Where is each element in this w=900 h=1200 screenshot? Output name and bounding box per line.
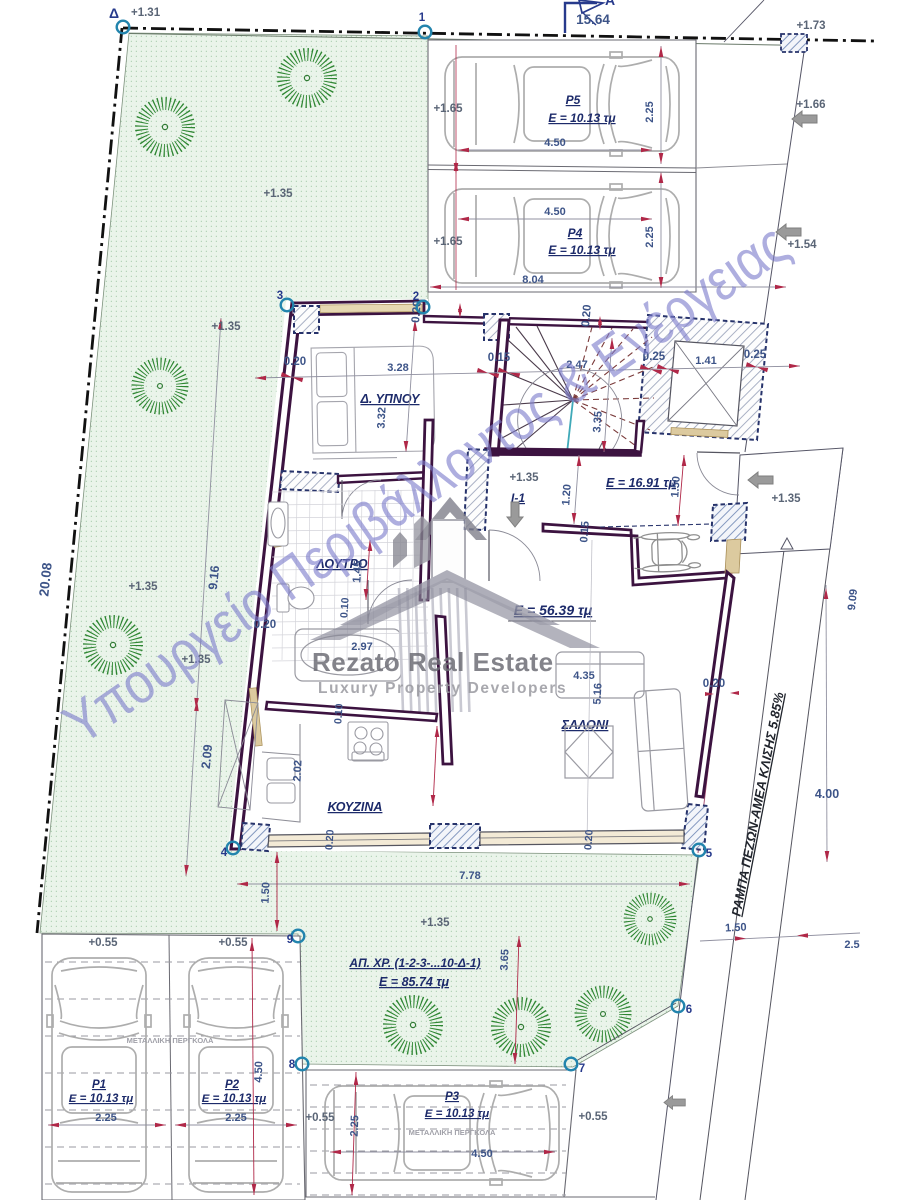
svg-text:ΑΠ. ΧΡ. (1-2-3-...10-Δ-1): ΑΠ. ΧΡ. (1-2-3-...10-Δ-1) (348, 956, 480, 970)
svg-text:ΚΟΥΖΙΝΑ: ΚΟΥΖΙΝΑ (328, 800, 383, 814)
svg-text:9.09: 9.09 (846, 588, 860, 611)
svg-text:+0.55: +0.55 (578, 1111, 608, 1123)
svg-text:P1: P1 (92, 1079, 106, 1091)
svg-text:+0.55: +0.55 (305, 1112, 335, 1124)
svg-text:+1.35: +1.35 (509, 472, 539, 484)
svg-text:+1.73: +1.73 (796, 20, 825, 32)
svg-text:5.16: 5.16 (591, 683, 604, 705)
svg-text:1.41: 1.41 (695, 355, 716, 367)
svg-text:0.20: 0.20 (703, 678, 725, 690)
svg-text:Ε = 85.74 τμ: Ε = 85.74 τμ (379, 975, 449, 989)
svg-text:1.50: 1.50 (725, 921, 747, 934)
svg-text:7: 7 (579, 1063, 585, 1075)
svg-text:4.00: 4.00 (815, 787, 839, 801)
svg-text:P2: P2 (225, 1079, 240, 1091)
svg-text:6: 6 (686, 1004, 692, 1016)
svg-text:3.28: 3.28 (387, 362, 408, 374)
svg-text:8: 8 (289, 1059, 296, 1071)
svg-text:Rezato Real Estate: Rezato Real Estate (312, 647, 554, 677)
svg-text:2.25: 2.25 (349, 1115, 362, 1137)
svg-text:4.50: 4.50 (544, 206, 565, 218)
svg-text:0.15: 0.15 (488, 352, 511, 364)
svg-text:P4: P4 (568, 226, 583, 240)
svg-text:Δ. ΥΠΝΟΥ: Δ. ΥΠΝΟΥ (359, 392, 421, 406)
svg-text:+0.55: +0.55 (218, 937, 248, 949)
svg-text:1.20: 1.20 (560, 484, 573, 506)
svg-text:1.50: 1.50 (259, 882, 272, 904)
svg-text:Ε = 10.13 τμ: Ε = 10.13 τμ (548, 111, 616, 125)
svg-text:+1.54: +1.54 (787, 239, 817, 251)
svg-text:2.09: 2.09 (199, 744, 215, 770)
svg-text:Ε = 10.13 τμ: Ε = 10.13 τμ (69, 1093, 133, 1105)
svg-text:Luxury Property Developers: Luxury Property Developers (318, 680, 567, 697)
svg-text:4.35: 4.35 (573, 670, 594, 682)
svg-text:0.10: 0.10 (338, 597, 351, 618)
svg-text:0.20: 0.20 (323, 829, 336, 850)
svg-text:Δ: Δ (109, 5, 119, 21)
svg-text:+1.35: +1.35 (771, 493, 801, 505)
svg-text:2.25: 2.25 (644, 226, 656, 247)
svg-text:4.50: 4.50 (471, 1148, 492, 1160)
svg-text:1: 1 (419, 12, 426, 24)
svg-text:2: 2 (413, 291, 419, 303)
svg-text:+1.35: +1.35 (128, 581, 158, 593)
svg-text:ΜΕΤΑΛΛΙΚΗ ΠΕΡΓΚΟΛΑ: ΜΕΤΑΛΛΙΚΗ ΠΕΡΓΚΟΛΑ (409, 1128, 496, 1137)
svg-text:3.35: 3.35 (591, 411, 604, 433)
svg-text:2.25: 2.25 (644, 101, 656, 122)
svg-text:+1.65: +1.65 (433, 236, 463, 248)
svg-text:+1.35: +1.35 (211, 321, 241, 333)
svg-text:0.20: 0.20 (284, 356, 306, 368)
svg-text:2.25: 2.25 (225, 1112, 246, 1124)
svg-text:0.25: 0.25 (744, 349, 767, 361)
svg-text:2.25: 2.25 (95, 1112, 116, 1124)
svg-text:+1.31: +1.31 (131, 7, 161, 19)
svg-text:0.20: 0.20 (580, 304, 594, 327)
svg-text:0.15: 0.15 (578, 521, 591, 543)
svg-text:8.04: 8.04 (522, 274, 544, 286)
svg-text:A: A (605, 0, 615, 8)
svg-text:Ε = 10.13 τμ: Ε = 10.13 τμ (202, 1093, 266, 1105)
svg-text:4.50: 4.50 (544, 137, 565, 149)
svg-text:Ε = 10.13 τμ: Ε = 10.13 τμ (548, 243, 616, 257)
svg-text:Ε = 10.13 τμ: Ε = 10.13 τμ (425, 1108, 489, 1120)
svg-text:+1.35: +1.35 (263, 188, 293, 200)
svg-text:Ε = 16.91 τμ: Ε = 16.91 τμ (606, 476, 676, 490)
svg-text:4: 4 (221, 847, 228, 859)
svg-text:P3: P3 (445, 1091, 460, 1103)
svg-text:4.50: 4.50 (253, 1061, 266, 1083)
svg-text:2.02: 2.02 (291, 760, 304, 782)
svg-text:ΜΕΤΑΛΛΙΚΗ ΠΕΡΓΚΟΛΑ: ΜΕΤΑΛΛΙΚΗ ΠΕΡΓΚΟΛΑ (127, 1036, 214, 1045)
svg-text:+1.65: +1.65 (433, 103, 463, 115)
svg-text:+1.66: +1.66 (796, 99, 825, 111)
svg-text:3.65: 3.65 (498, 949, 511, 971)
svg-text:9: 9 (287, 934, 293, 946)
svg-text:3.32: 3.32 (375, 407, 388, 429)
svg-text:0.20: 0.20 (582, 829, 595, 850)
svg-text:2.5: 2.5 (844, 939, 859, 951)
svg-text:15.64: 15.64 (576, 12, 610, 27)
svg-text:0.10: 0.10 (332, 703, 345, 724)
svg-text:1.50: 1.50 (669, 476, 682, 498)
svg-text:+0.55: +0.55 (88, 937, 118, 949)
svg-text:+1.35: +1.35 (420, 917, 450, 929)
svg-text:P5: P5 (566, 93, 581, 107)
svg-text:5: 5 (706, 848, 713, 860)
svg-text:3: 3 (277, 290, 283, 302)
svg-text:7.78: 7.78 (459, 870, 480, 882)
